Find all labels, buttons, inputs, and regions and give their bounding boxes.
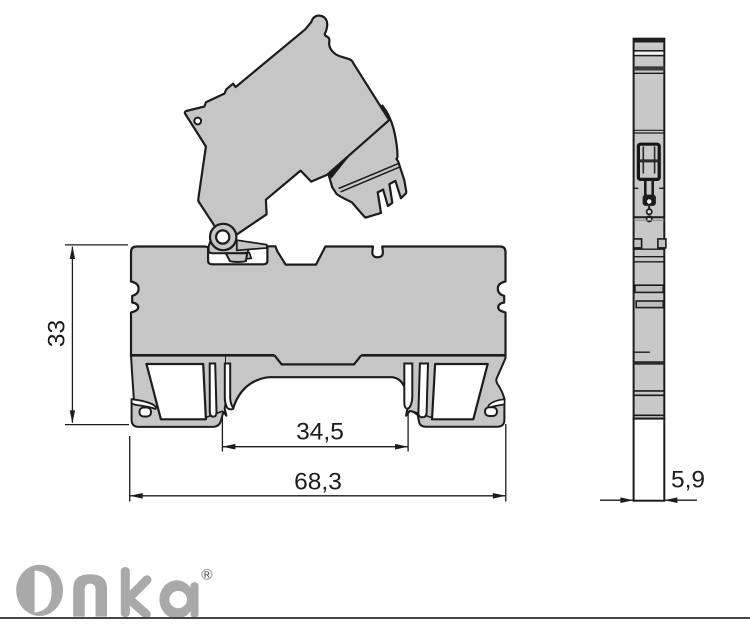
svg-text:68,3: 68,3 [294,469,342,496]
svg-text:5,9: 5,9 [671,467,705,494]
svg-text:R: R [204,571,210,580]
svg-text:33: 33 [44,320,71,347]
svg-text:34,5: 34,5 [296,419,344,446]
